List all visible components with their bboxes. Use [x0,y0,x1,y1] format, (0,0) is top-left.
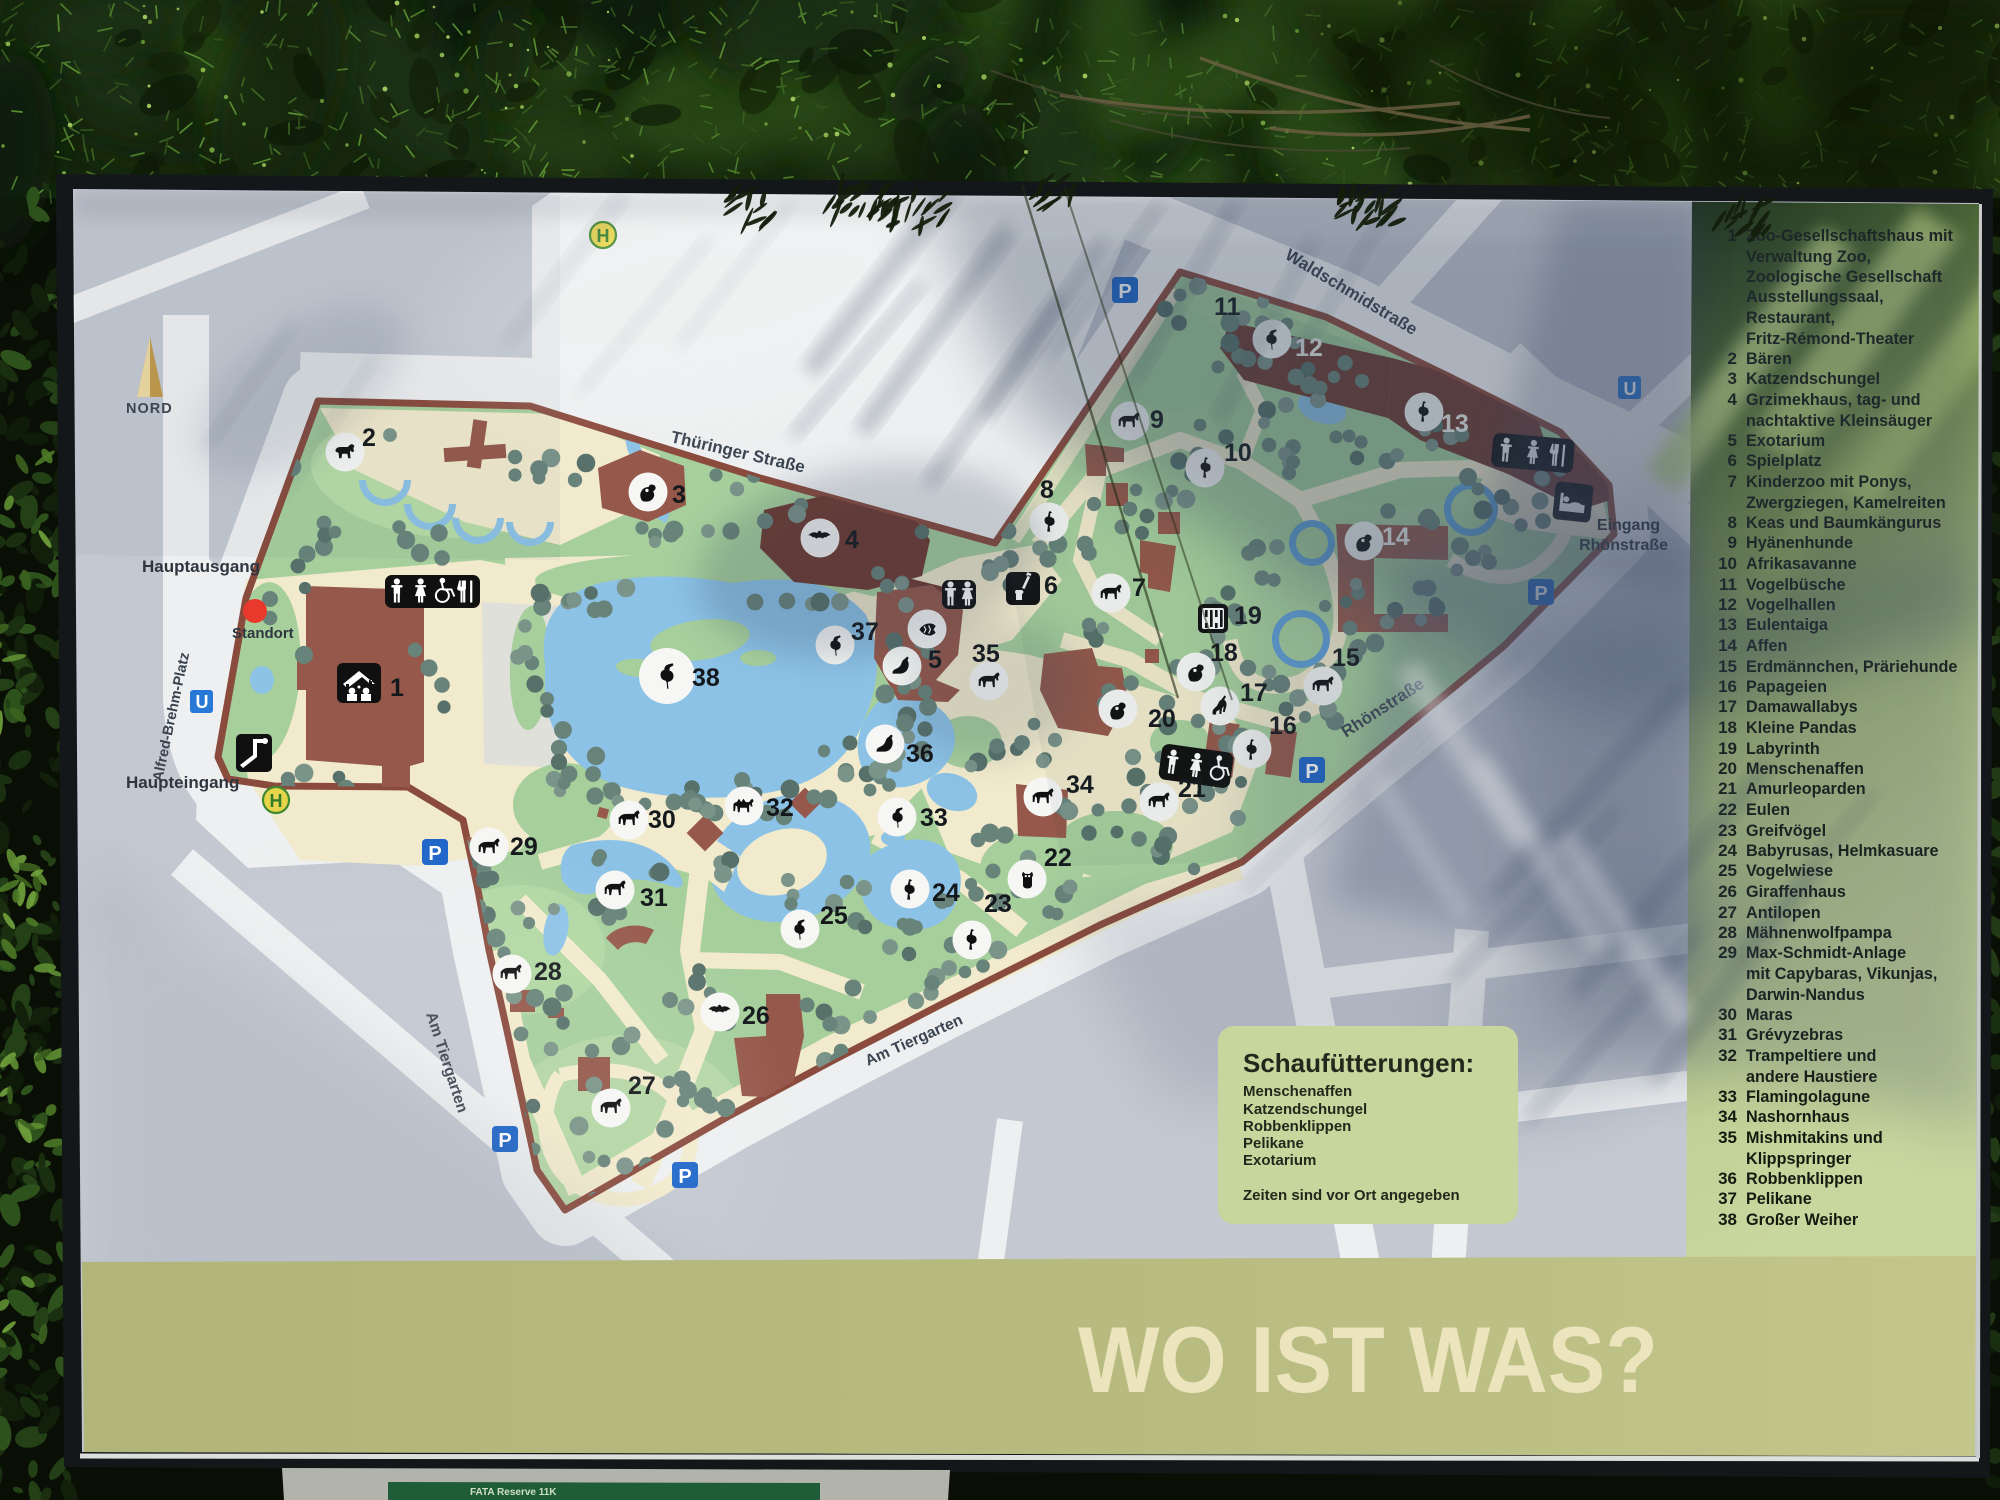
svg-text:1: 1 [390,674,404,702]
svg-text:29: 29 [510,833,538,861]
svg-text:Katzendschungel: Katzendschungel [1243,1101,1367,1118]
svg-text:Großer Weiher: Großer Weiher [1746,1211,1859,1229]
svg-text:33: 33 [920,804,948,832]
svg-text:U: U [196,692,209,712]
svg-text:3: 3 [672,481,686,509]
svg-text:Schaufütterungen:: Schaufütterungen: [1243,1048,1474,1078]
svg-text:37: 37 [1718,1189,1737,1208]
svg-text:Nashornhaus: Nashornhaus [1746,1108,1849,1126]
svg-text:23: 23 [984,890,1012,918]
svg-text:Zeiten sind vor Ort angegeben: Zeiten sind vor Ort angegeben [1243,1187,1460,1204]
svg-text:38: 38 [1718,1210,1737,1229]
svg-text:26: 26 [742,1002,770,1030]
svg-text:Robbenklippen: Robbenklippen [1243,1118,1351,1135]
svg-text:Haupteingang: Haupteingang [126,773,239,792]
svg-text:35: 35 [1718,1128,1737,1147]
svg-text:Hauptausgang: Hauptausgang [142,557,260,576]
svg-text:Menschenaffen: Menschenaffen [1243,1083,1352,1100]
svg-text:Mishmitakins und: Mishmitakins und [1746,1129,1883,1147]
svg-text:H: H [270,791,283,811]
svg-text:31: 31 [640,884,668,912]
svg-text:Klippspringer: Klippspringer [1746,1150,1852,1168]
svg-text:30: 30 [648,806,676,834]
svg-text:24: 24 [932,879,960,907]
svg-text:38: 38 [692,664,720,692]
svg-text:P: P [428,843,441,865]
svg-text:Pelikane: Pelikane [1243,1135,1304,1152]
svg-text:33: 33 [1718,1087,1737,1106]
svg-text:Robbenklippen: Robbenklippen [1746,1170,1863,1188]
svg-text:FATA Reserve 11K: FATA Reserve 11K [470,1487,557,1498]
svg-text:Pelikane: Pelikane [1746,1190,1812,1208]
svg-text:WO IST WAS?: WO IST WAS? [1078,1307,1658,1412]
svg-text:36: 36 [1718,1169,1737,1188]
svg-text:32: 32 [766,794,794,822]
svg-text:25: 25 [820,902,848,930]
svg-text:Exotarium: Exotarium [1243,1152,1316,1169]
svg-text:Standort: Standort [232,625,294,642]
svg-text:34: 34 [1718,1107,1737,1126]
